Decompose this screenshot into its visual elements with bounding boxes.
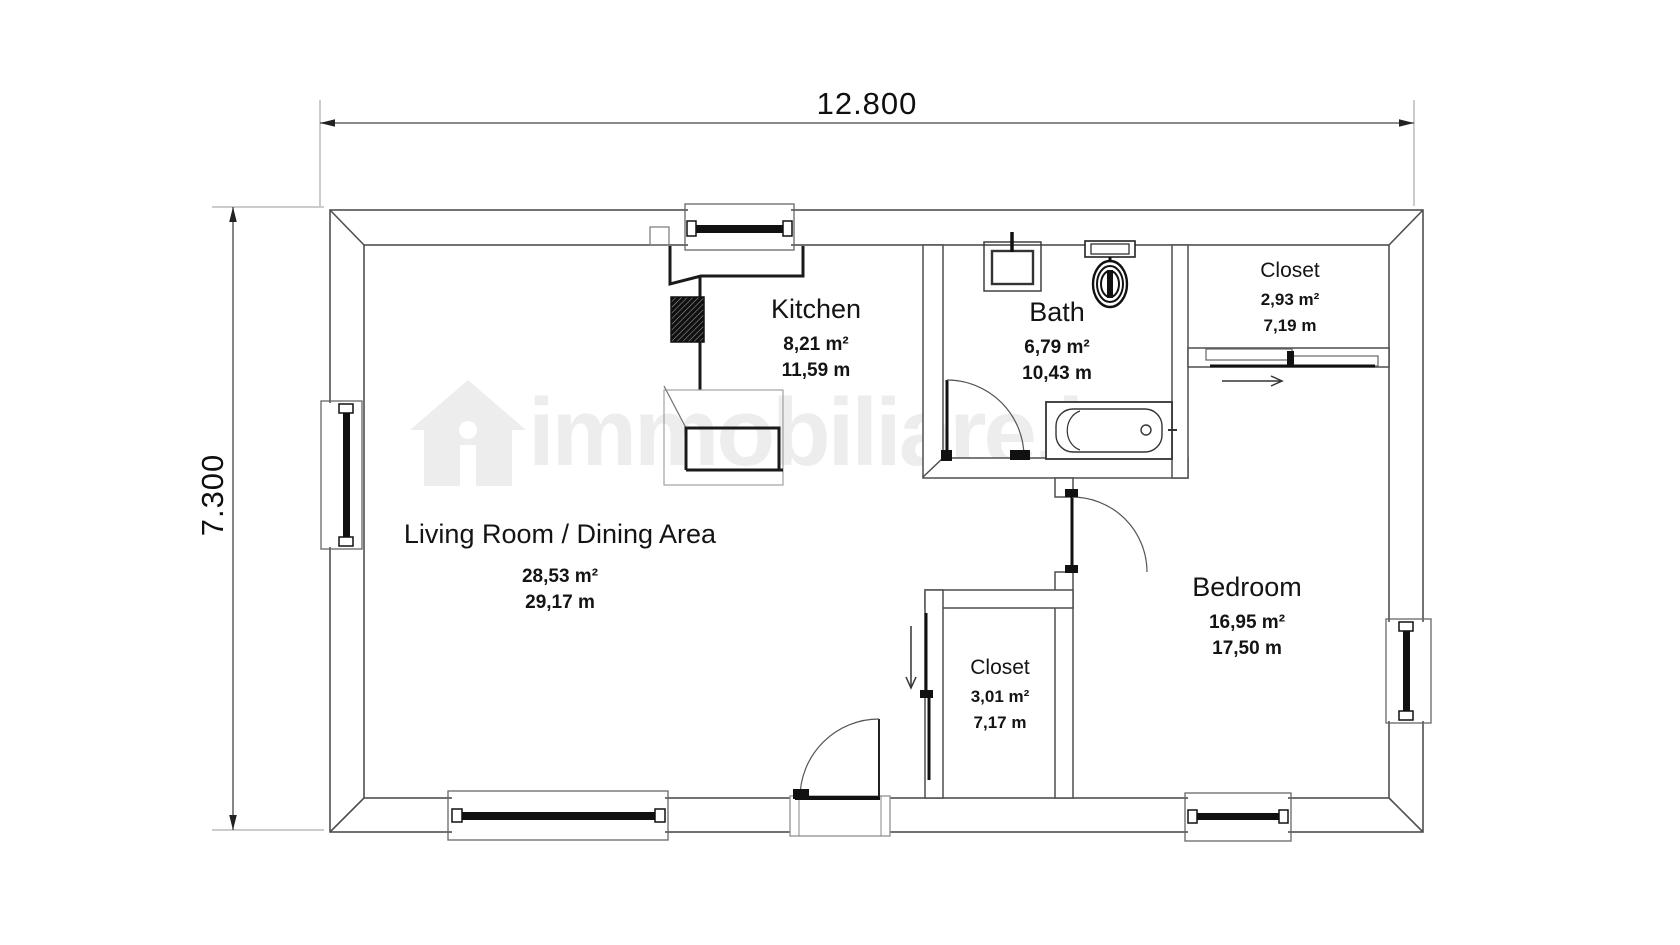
wall-living-bath — [923, 245, 943, 477]
stove — [671, 297, 704, 342]
room-perimeter: 29,17 m — [404, 590, 716, 616]
entrance-door — [790, 719, 890, 836]
room-name: Bath — [1022, 299, 1092, 326]
room-area: 6,79 m² — [1022, 335, 1092, 361]
room-perimeter: 7,19 m — [1260, 313, 1320, 339]
room-area: 8,21 m² — [771, 332, 861, 358]
wall-closet-bottom-top — [925, 590, 1073, 608]
room-area: 2,93 m² — [1260, 287, 1320, 313]
floor-plan-drawing — [0, 0, 1680, 945]
bathtub — [1046, 402, 1177, 459]
width-dimension-label: 12.800 — [817, 86, 918, 122]
height-dimension-label: 7.300 — [195, 454, 231, 537]
bedroom-door-arc — [1072, 497, 1147, 572]
toilet — [1085, 241, 1135, 307]
living-room-label: Living Room / Dining Area 28,53 m² 29,17… — [404, 521, 716, 616]
closet-top-label: Closet 2,93 m² 7,19 m — [1260, 260, 1320, 339]
room-perimeter: 17,50 m — [1192, 636, 1302, 662]
bath-door — [941, 380, 1030, 461]
room-name: Closet — [970, 657, 1030, 678]
room-perimeter: 7,17 m — [970, 710, 1030, 736]
kitchen-label: Kitchen 8,21 m² 11,59 m — [771, 296, 861, 384]
floor-plan-page: immobiliare.it — [0, 0, 1680, 945]
wall-bath-bedroom — [1172, 245, 1188, 478]
room-name: Kitchen — [771, 296, 861, 323]
entrance-door-arc — [800, 719, 879, 798]
room-area: 16,95 m² — [1192, 610, 1302, 636]
sink — [984, 232, 1041, 291]
room-perimeter: 10,43 m — [1022, 361, 1092, 387]
bath-door-arc — [947, 380, 1024, 457]
room-name: Bedroom — [1192, 574, 1302, 601]
closet-bottom-label: Closet 3,01 m² 7,17 m — [970, 657, 1030, 736]
room-area: 28,53 m² — [404, 564, 716, 590]
bedroom-label: Bedroom 16,95 m² 17,50 m — [1192, 574, 1302, 662]
room-name: Closet — [1260, 260, 1320, 281]
bath-label: Bath 6,79 m² 10,43 m — [1022, 299, 1092, 387]
room-perimeter: 11,59 m — [771, 358, 861, 384]
room-area: 3,01 m² — [970, 684, 1030, 710]
room-name: Living Room / Dining Area — [404, 521, 716, 548]
bedroom-door — [1065, 489, 1147, 573]
